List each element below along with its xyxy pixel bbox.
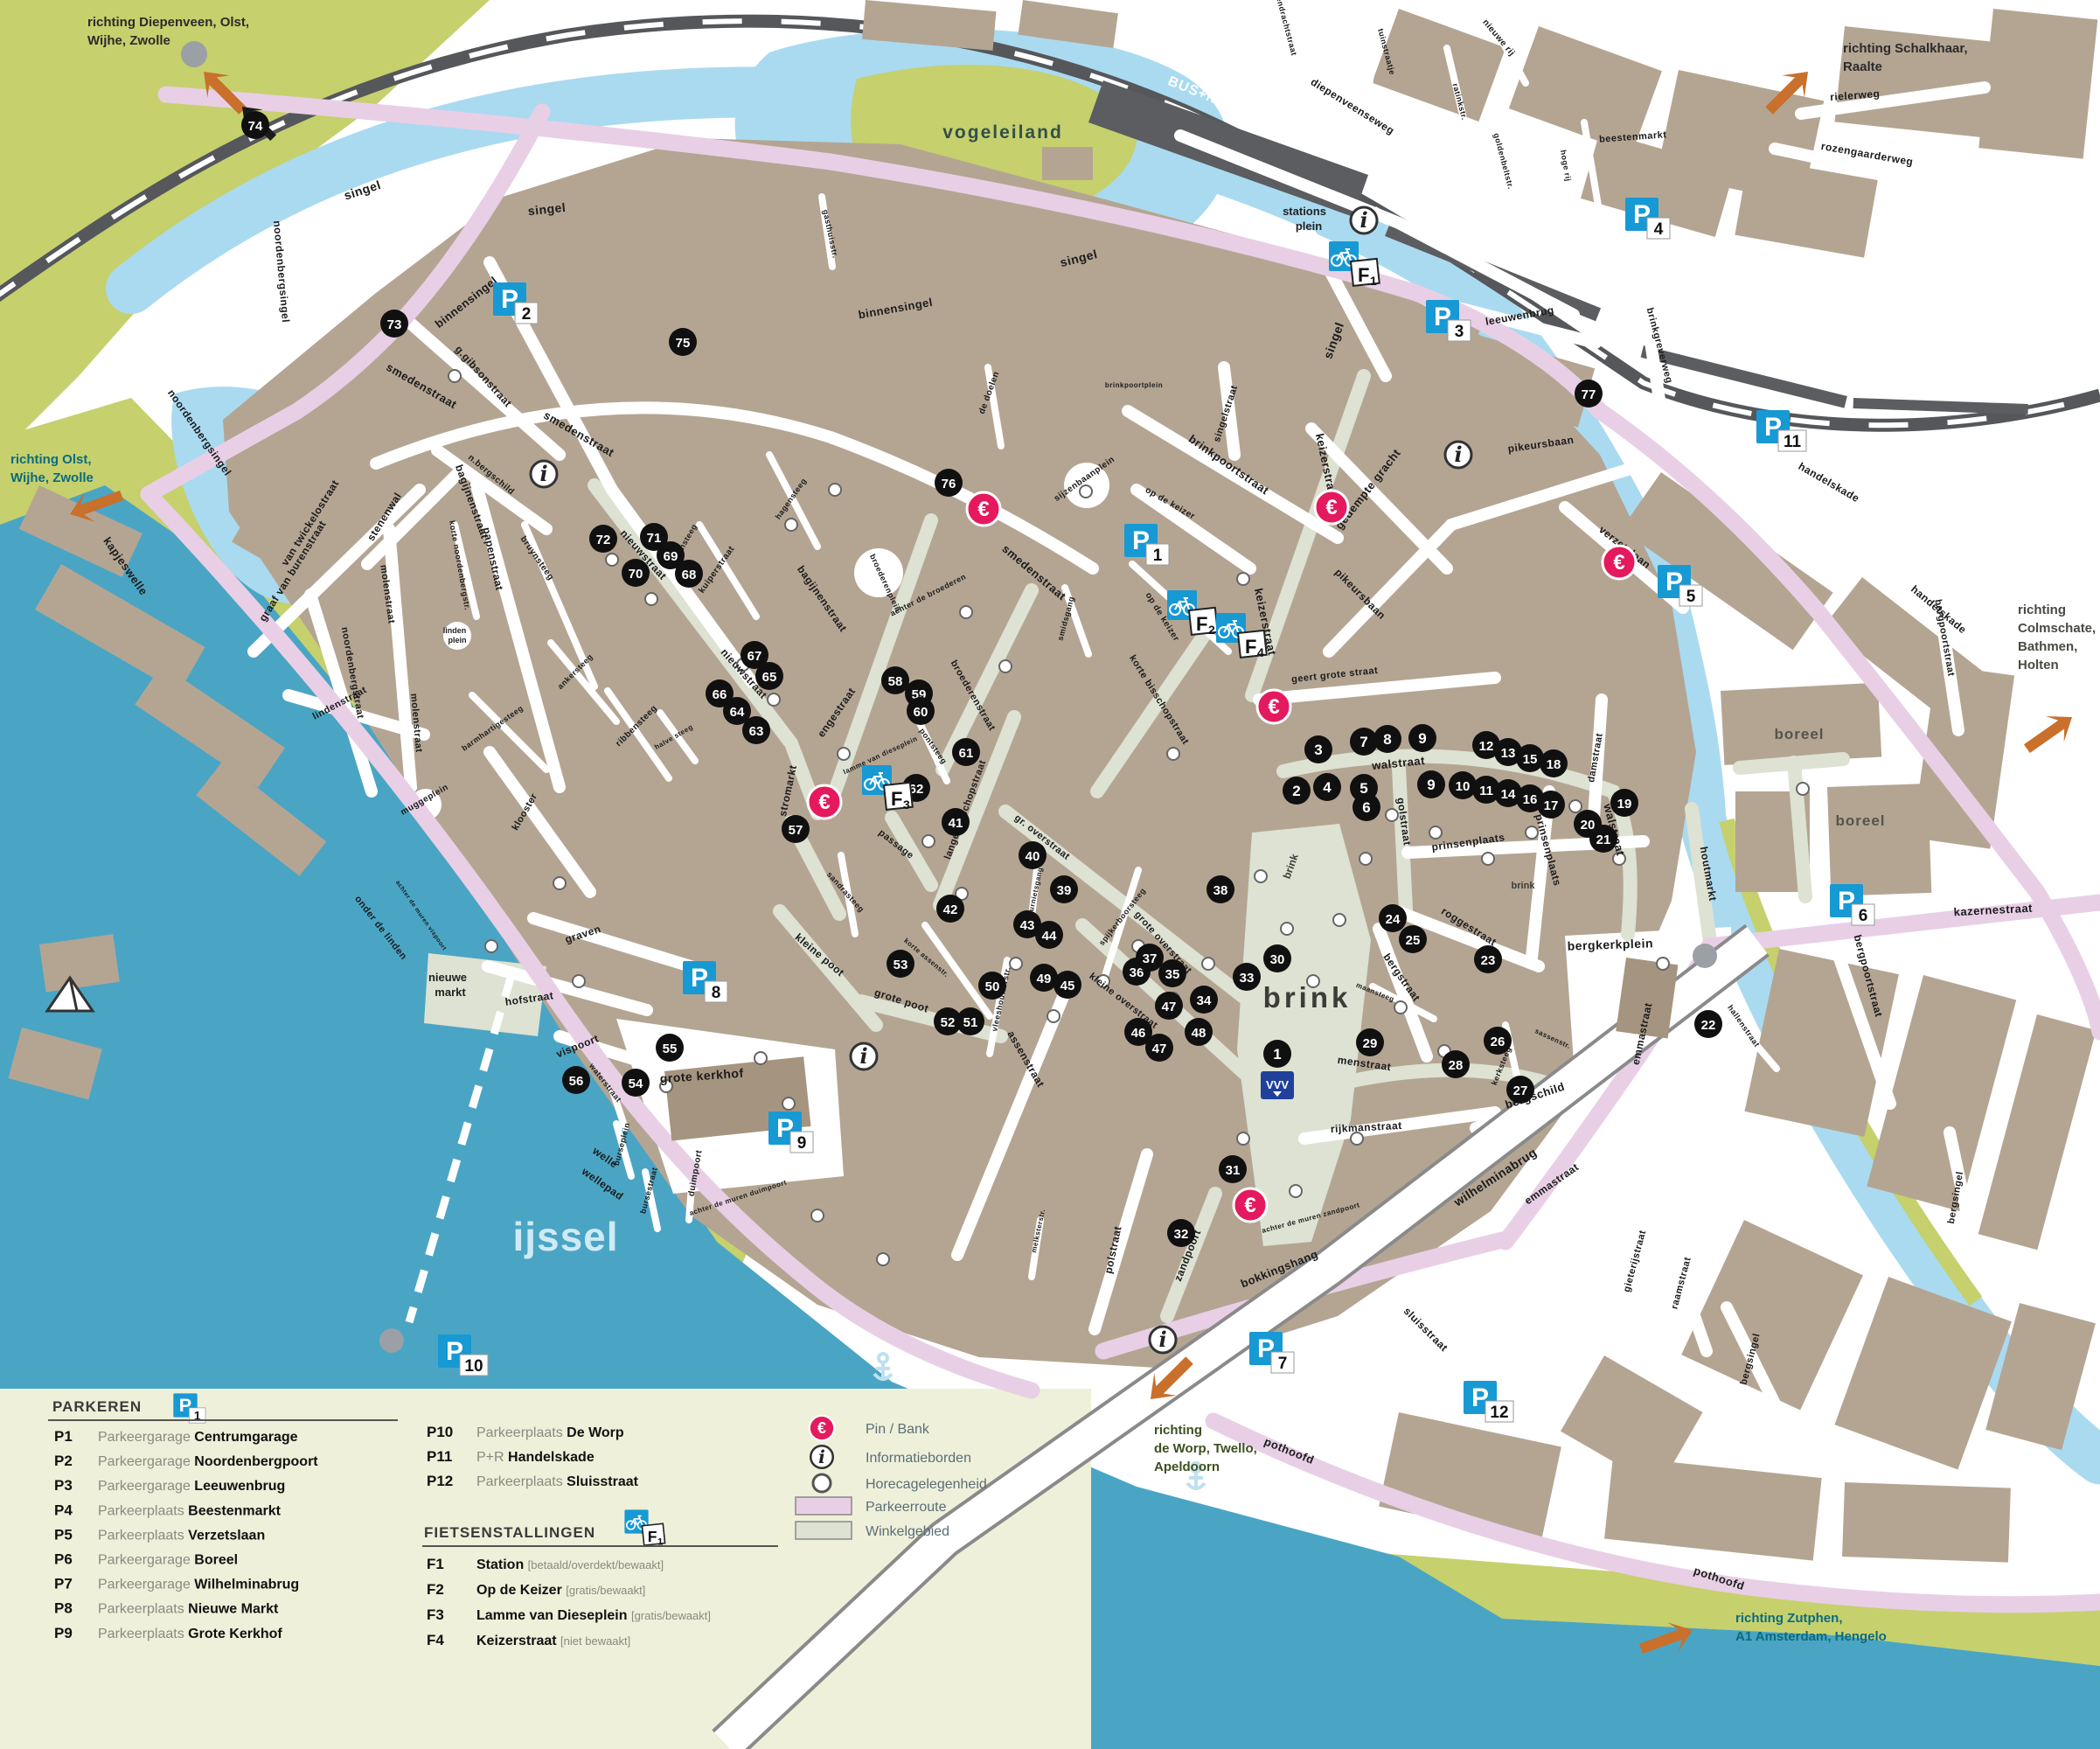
svg-text:F: F: [1196, 613, 1207, 635]
direction-label-text: A1 Amsterdam, Hengelo: [1735, 1629, 1887, 1644]
legend-parking-id: P7: [54, 1576, 73, 1592]
horeca-dot: [1657, 958, 1669, 970]
svg-text:52: 52: [941, 1015, 956, 1030]
svg-text:50: 50: [985, 979, 1000, 994]
information-marker[interactable]: i: [851, 1043, 877, 1070]
poi-marker-37[interactable]: 37: [1136, 944, 1164, 972]
horeca-icon: [813, 1474, 831, 1492]
svg-text:42: 42: [943, 902, 958, 917]
horeca-dot: [1359, 853, 1372, 865]
information-marker[interactable]: i: [531, 461, 557, 487]
svg-text:72: 72: [596, 533, 611, 547]
legend-parking-id: P9: [54, 1625, 73, 1641]
svg-text:€: €: [1244, 1194, 1255, 1217]
pin-bank-marker[interactable]: €: [967, 492, 1000, 526]
legend-parking-entry: Parkeergarage Centrumgarage: [98, 1430, 298, 1445]
svg-text:31: 31: [1226, 1163, 1241, 1178]
direction-label-text: Holten: [2018, 658, 2059, 672]
poi-marker-77[interactable]: 77: [1575, 380, 1603, 408]
legend-parking-entry: Parkeergarage Boreel: [98, 1553, 238, 1568]
svg-text:4: 4: [1323, 779, 1332, 796]
pin-bank-marker[interactable]: €: [1257, 690, 1290, 723]
poi-marker-10[interactable]: 10: [1449, 771, 1477, 799]
svg-text:€: €: [977, 498, 989, 521]
legend-symbol-label: Horecagelegenheid: [866, 1477, 987, 1492]
horeca-dot: [1255, 870, 1267, 882]
poi-marker-54[interactable]: 54: [622, 1069, 650, 1097]
svg-text:16: 16: [1523, 792, 1538, 807]
legend-symbol-label: Parkeerroute: [866, 1500, 947, 1515]
svg-text:44: 44: [1042, 929, 1057, 944]
svg-text:€: €: [817, 1419, 826, 1437]
area-label: markt: [435, 986, 466, 999]
poi-marker-26[interactable]: 26: [1484, 1027, 1512, 1055]
svg-text:8: 8: [1383, 731, 1391, 748]
svg-text:1: 1: [1370, 274, 1377, 288]
poi-marker-19[interactable]: 19: [1610, 789, 1638, 817]
svg-text:i: i: [539, 461, 547, 486]
svg-text:i: i: [1359, 207, 1367, 233]
horeca-dot: [485, 940, 497, 952]
poi-marker-53[interactable]: 53: [887, 950, 914, 978]
poi-marker-47[interactable]: 47: [1145, 1034, 1173, 1062]
horeca-dot: [754, 1052, 767, 1064]
poi-marker-44[interactable]: 44: [1035, 921, 1063, 949]
svg-text:29: 29: [1363, 1036, 1378, 1051]
horeca-dot: [573, 975, 585, 987]
pin-bank-marker[interactable]: €: [1315, 491, 1348, 524]
svg-text:32: 32: [1174, 1227, 1189, 1242]
poi-marker-9[interactable]: 9: [1417, 770, 1445, 798]
city-map-canvas: singelsingelsingelsingelbinnensingelbinn…: [0, 0, 2100, 1749]
svg-text:68: 68: [682, 568, 697, 582]
poi-marker-38[interactable]: 38: [1206, 875, 1234, 903]
area-label: boreel: [1774, 726, 1824, 742]
svg-text:55: 55: [663, 1042, 678, 1056]
svg-text:1: 1: [1273, 1046, 1281, 1063]
horeca-dot: [1526, 826, 1538, 839]
pin-bank-marker[interactable]: €: [1234, 1188, 1267, 1222]
svg-text:41: 41: [949, 816, 963, 831]
svg-text:17: 17: [1544, 798, 1559, 813]
svg-text:43: 43: [1020, 918, 1035, 933]
svg-text:70: 70: [629, 567, 643, 582]
svg-text:€: €: [818, 791, 830, 814]
poi-marker-60[interactable]: 60: [907, 697, 935, 725]
legend-parking-id: P12: [427, 1473, 453, 1489]
legend-fiets-id: F1: [427, 1556, 444, 1572]
horeca-dot: [645, 593, 657, 605]
legend-parking-entry: Parkeerplaats Sluisstraat: [476, 1474, 639, 1489]
svg-text:14: 14: [1501, 787, 1516, 802]
svg-text:11: 11: [1784, 433, 1802, 451]
legend-parking-id: P10: [427, 1424, 453, 1440]
svg-text:2: 2: [1292, 783, 1300, 799]
svg-text:33: 33: [1240, 971, 1255, 986]
horeca-dot: [782, 1097, 795, 1110]
svg-text:18: 18: [1547, 757, 1561, 772]
svg-text:4: 4: [1257, 645, 1264, 659]
poi-marker-8[interactable]: 8: [1373, 725, 1401, 753]
svg-text:39: 39: [1057, 883, 1072, 898]
svg-text:51: 51: [963, 1015, 978, 1030]
poi-marker-76[interactable]: 76: [935, 469, 963, 497]
svg-text:35: 35: [1165, 967, 1180, 982]
legend-parking-id: P1: [54, 1428, 73, 1445]
poi-marker-70[interactable]: 70: [622, 559, 650, 587]
poi-marker-57[interactable]: 57: [782, 815, 810, 843]
direction-label-text: richting: [2018, 603, 2066, 617]
svg-text:8: 8: [712, 984, 721, 1002]
poi-marker-22[interactable]: 22: [1694, 1010, 1722, 1038]
poi-marker-33[interactable]: 33: [1233, 963, 1261, 991]
poi-marker-52[interactable]: 52: [934, 1007, 962, 1035]
legend-parking-entry: Parkeergarage Wilhelminabrug: [98, 1578, 299, 1592]
poi-marker-4[interactable]: 4: [1313, 773, 1341, 801]
svg-text:7: 7: [1278, 1355, 1288, 1373]
svg-text:i: i: [1454, 442, 1462, 467]
information-marker[interactable]: i: [1150, 1327, 1176, 1353]
poi-marker-67[interactable]: 67: [741, 641, 768, 669]
horeca-dot: [1351, 1132, 1363, 1145]
poi-marker-9[interactable]: 9: [1408, 724, 1436, 752]
direction-label-text: Raalte: [1843, 59, 1882, 74]
legend-fiets-entry: Lamme van Dieseplein [gratis/bewaakt]: [476, 1608, 711, 1623]
poi-marker-3[interactable]: 3: [1304, 735, 1332, 763]
direction-label-text: richting Diepenveen, Olst,: [87, 15, 249, 30]
horeca-dot: [1333, 914, 1346, 926]
legend-parking-id: P11: [427, 1448, 452, 1465]
direction-label-text: de Worp, Twello,: [1154, 1441, 1257, 1456]
svg-text:F: F: [1245, 636, 1256, 658]
horeca-dot: [999, 660, 1012, 672]
svg-text:28: 28: [1449, 1058, 1464, 1073]
legend-parking-entry: Parkeerplaats Grote Kerkhof: [98, 1627, 282, 1641]
horeca-dot: [838, 748, 850, 760]
direction-label-text: Wijhe, Zwolle: [87, 33, 170, 48]
horeca-dot: [811, 1209, 824, 1222]
svg-text:21: 21: [1596, 833, 1611, 847]
poi-marker-73[interactable]: 73: [380, 310, 408, 338]
horeca-dot: [606, 554, 618, 566]
svg-text:4: 4: [1654, 220, 1664, 239]
horeca-dot: [1047, 1010, 1060, 1022]
poi-marker-15[interactable]: 15: [1516, 744, 1544, 772]
svg-text:45: 45: [1060, 979, 1075, 993]
legend-fiets-id: F3: [427, 1606, 444, 1623]
area-label: plein: [1296, 219, 1322, 233]
svg-text:7: 7: [1359, 734, 1367, 750]
svg-text:€: €: [1613, 551, 1624, 575]
information-marker[interactable]: i: [810, 1446, 833, 1468]
svg-text:F: F: [1358, 264, 1369, 286]
svg-text:74: 74: [248, 119, 263, 134]
horeca-dot: [1797, 783, 1809, 795]
svg-text:i: i: [1158, 1327, 1166, 1352]
svg-text:49: 49: [1037, 972, 1052, 986]
svg-text:6: 6: [1362, 799, 1370, 816]
poi-marker-58[interactable]: 58: [881, 666, 909, 694]
direction-label-text: richting Schalkhaar,: [1843, 41, 1968, 56]
svg-text:24: 24: [1386, 912, 1401, 927]
horeca-dot: [785, 519, 797, 531]
area-label: nieuwe: [428, 971, 467, 984]
svg-text:40: 40: [1026, 849, 1040, 864]
poi-marker-56[interactable]: 56: [562, 1066, 590, 1094]
svg-text:53: 53: [894, 958, 908, 972]
svg-text:37: 37: [1143, 951, 1158, 966]
poi-marker-41[interactable]: 41: [942, 808, 970, 836]
svg-text:i: i: [859, 1043, 867, 1069]
poi-marker-75[interactable]: 75: [669, 328, 697, 356]
pin-bank-marker[interactable]: €: [808, 785, 841, 819]
svg-text:12: 12: [1479, 739, 1494, 754]
horeca-dot: [1429, 826, 1442, 839]
svg-text:F: F: [891, 788, 902, 810]
direction-label-text: richting Olst,: [10, 452, 92, 467]
legend-fiets-id: F2: [427, 1581, 444, 1598]
poi-marker-42[interactable]: 42: [936, 895, 964, 923]
poi-marker-35[interactable]: 35: [1158, 959, 1186, 987]
poi-marker-40[interactable]: 40: [1019, 841, 1047, 869]
poi-marker-74[interactable]: 74: [241, 111, 269, 139]
pin-bank-marker[interactable]: €: [1603, 546, 1636, 579]
poi-marker-71[interactable]: 71: [640, 523, 668, 551]
legend-parking-id: P2: [54, 1453, 73, 1469]
direction-label-text: richting: [1154, 1423, 1202, 1438]
poi-marker-6[interactable]: 6: [1352, 793, 1380, 821]
legend-fiets-entry: Keizerstraat [niet bewaakt]: [476, 1634, 630, 1648]
svg-text:30: 30: [1270, 952, 1285, 967]
svg-text:22: 22: [1701, 1018, 1716, 1033]
svg-text:F: F: [648, 1528, 657, 1545]
poi-marker-29[interactable]: 29: [1356, 1028, 1384, 1056]
svg-text:77: 77: [1582, 387, 1596, 402]
poi-marker-50[interactable]: 50: [978, 972, 1006, 1000]
area-label: boreel: [1835, 812, 1885, 829]
winkelgebied-swatch: [796, 1522, 852, 1539]
legend-parking-id: P3: [54, 1477, 73, 1494]
poi-marker-48[interactable]: 48: [1185, 1018, 1213, 1046]
legend-fiets-id: F4: [427, 1632, 444, 1648]
horeca-dot: [1281, 923, 1293, 935]
svg-text:66: 66: [713, 687, 727, 702]
svg-text:3: 3: [903, 798, 910, 812]
svg-text:71: 71: [647, 531, 662, 546]
svg-text:47: 47: [1152, 1042, 1167, 1056]
direction-label-text: Bathmen,: [2018, 639, 2077, 654]
svg-text:9: 9: [797, 1134, 807, 1153]
street-label: brinkpoortplein: [1105, 381, 1163, 389]
horeca-dot: [1237, 573, 1249, 585]
horeca-dot: [1482, 853, 1494, 865]
poi-marker-24[interactable]: 24: [1379, 904, 1407, 932]
area-label: plein: [448, 636, 466, 645]
horeca-dot: [768, 693, 780, 706]
svg-text:5: 5: [1686, 588, 1696, 606]
svg-text:9: 9: [1427, 777, 1435, 793]
poi-marker-45[interactable]: 45: [1053, 971, 1081, 999]
poi-marker-39[interactable]: 39: [1050, 875, 1078, 903]
svg-text:38: 38: [1213, 883, 1228, 898]
legend-parking-id: P4: [54, 1502, 73, 1518]
svg-text:63: 63: [749, 724, 764, 739]
svg-text:73: 73: [387, 317, 402, 332]
horeca-dot: [1290, 1185, 1302, 1197]
map-svg: singelsingelsingelsingelbinnensingelbinn…: [0, 0, 2100, 1749]
poi-marker-1[interactable]: 1: [1263, 1040, 1291, 1068]
legend-parking-entry: P+R Handelskade: [476, 1450, 595, 1465]
poi-marker-27[interactable]: 27: [1506, 1076, 1534, 1104]
legend-symbol-label: Winkelgebied: [866, 1524, 949, 1539]
horeca-dot: [449, 370, 461, 382]
horeca-dot: [829, 484, 841, 496]
svg-text:i: i: [818, 1446, 825, 1467]
svg-text:27: 27: [1513, 1084, 1528, 1098]
poi-marker-66[interactable]: 66: [706, 679, 734, 707]
poi-marker-25[interactable]: 25: [1399, 925, 1427, 953]
svg-text:75: 75: [676, 336, 691, 351]
svg-text:34: 34: [1197, 993, 1212, 1008]
direction-label-text: Wijhe, Zwolle: [10, 470, 94, 485]
poi-marker-31[interactable]: 31: [1219, 1155, 1247, 1183]
legend-parkeren-title: PARKEREN: [52, 1398, 142, 1415]
horeca-dot: [1386, 809, 1398, 821]
legend-parking-entry: Parkeerplaats Verzetslaan: [98, 1528, 265, 1543]
poi-marker-2[interactable]: 2: [1283, 777, 1311, 805]
svg-text:47: 47: [1162, 1000, 1177, 1014]
poi-marker-17[interactable]: 17: [1537, 791, 1565, 819]
horeca-dot: [960, 606, 972, 618]
horeca-dot: [553, 877, 566, 889]
poi-marker-49[interactable]: 49: [1030, 964, 1058, 992]
area-label: vogeleiland: [942, 122, 1063, 143]
svg-text:64: 64: [730, 705, 745, 720]
svg-text:11: 11: [1479, 784, 1493, 798]
svg-text:6: 6: [1859, 907, 1868, 925]
svg-text:2: 2: [1208, 623, 1215, 637]
poi-marker-23[interactable]: 23: [1474, 945, 1502, 973]
legend-fiets-title: FIETSENSTALLINGEN: [424, 1524, 595, 1541]
poi-marker-28[interactable]: 28: [1442, 1050, 1470, 1078]
svg-text:26: 26: [1491, 1035, 1505, 1049]
legend-parking-id: P5: [54, 1526, 73, 1543]
svg-text:56: 56: [569, 1074, 584, 1089]
legend-parking-entry: Parkeerplaats De Worp: [476, 1425, 624, 1440]
poi-marker-32[interactable]: 32: [1167, 1219, 1195, 1247]
horeca-dot: [877, 1253, 889, 1265]
direction-label-text: Apeldoorn: [1154, 1460, 1220, 1474]
svg-text:€: €: [1325, 496, 1337, 519]
svg-text:54: 54: [629, 1077, 643, 1091]
poi-marker-21[interactable]: 21: [1589, 825, 1617, 853]
svg-text:46: 46: [1131, 1026, 1146, 1041]
svg-text:3: 3: [1314, 742, 1322, 758]
svg-text:58: 58: [888, 674, 903, 689]
svg-text:3: 3: [1455, 323, 1464, 341]
svg-text:€: €: [1268, 695, 1279, 719]
horeca-dot: [1394, 1001, 1407, 1014]
svg-text:76: 76: [942, 477, 956, 491]
svg-text:10: 10: [464, 1357, 483, 1376]
vvv-tourist-office-marker[interactable]: VVV: [1261, 1071, 1294, 1099]
svg-text:61: 61: [959, 746, 974, 761]
svg-text:67: 67: [748, 649, 762, 664]
map-base-layer: [0, 0, 2100, 1749]
legend-parking-entry: Parkeergarage Noordenbergpoort: [98, 1454, 318, 1469]
svg-text:15: 15: [1523, 752, 1538, 767]
legend-parking-entry: Parkeergarage Leeuwenbrug: [98, 1479, 285, 1494]
legend-symbol-label: Informatieborden: [866, 1451, 971, 1466]
area-label: brink: [1263, 981, 1352, 1014]
poi-marker-61[interactable]: 61: [952, 738, 980, 766]
poi-marker-7[interactable]: 7: [1350, 728, 1378, 756]
svg-text:48: 48: [1192, 1026, 1206, 1041]
poi-marker-47[interactable]: 47: [1155, 992, 1183, 1020]
pin-bank-marker[interactable]: €: [810, 1416, 835, 1441]
svg-text:13: 13: [1501, 746, 1516, 761]
information-marker[interactable]: i: [1445, 442, 1471, 468]
horeca-dot: [922, 835, 935, 847]
direction-label-text: richting Zutphen,: [1735, 1611, 1842, 1626]
area-label: stations: [1283, 205, 1326, 218]
direction-label-text: Colmschate,: [2018, 621, 2096, 636]
legend-symbol-label: Pin / Bank: [866, 1422, 930, 1437]
legend-parking-entry: Parkeerplaats Nieuwe Markt: [98, 1602, 279, 1617]
horeca-dot: [1569, 800, 1582, 812]
svg-text:25: 25: [1406, 933, 1421, 948]
svg-text:10: 10: [1456, 779, 1471, 794]
svg-text:23: 23: [1481, 953, 1496, 968]
area-label: ijssel: [512, 1214, 618, 1259]
area-label: linden: [443, 626, 467, 635]
svg-text:60: 60: [914, 705, 928, 720]
legend-parking-id: P6: [54, 1551, 73, 1568]
svg-text:57: 57: [789, 823, 803, 838]
parkeerroute-swatch: [796, 1497, 852, 1515]
svg-text:65: 65: [762, 670, 777, 685]
legend-fiets-entry: Op de Keizer [gratis/bewaakt]: [476, 1583, 645, 1598]
information-marker[interactable]: i: [1351, 207, 1377, 233]
svg-text:1: 1: [1153, 547, 1163, 565]
horeca-dot: [1167, 748, 1179, 760]
poi-marker-30[interactable]: 30: [1263, 944, 1291, 972]
svg-text:VVV: VVV: [1266, 1078, 1289, 1091]
horeca-dot: [1080, 485, 1092, 498]
poi-marker-72[interactable]: 72: [589, 525, 617, 553]
svg-text:69: 69: [664, 549, 678, 564]
svg-text:9: 9: [1418, 730, 1426, 747]
legend-fiets-entry: Station [betaald/overdekt/bewaakt]: [476, 1557, 664, 1572]
legend-parking-id: P8: [54, 1600, 73, 1617]
legend-parking-entry: Parkeerplaats Beestenmarkt: [98, 1503, 282, 1518]
area-label: brink: [1512, 881, 1536, 891]
svg-text:19: 19: [1617, 797, 1632, 812]
poi-marker-55[interactable]: 55: [656, 1034, 684, 1062]
horeca-dot: [1237, 1132, 1249, 1145]
poi-marker-34[interactable]: 34: [1190, 986, 1218, 1014]
svg-text:12: 12: [1490, 1404, 1508, 1422]
poi-marker-18[interactable]: 18: [1540, 749, 1568, 777]
svg-text:2: 2: [522, 305, 532, 324]
horeca-dot: [1202, 958, 1214, 970]
